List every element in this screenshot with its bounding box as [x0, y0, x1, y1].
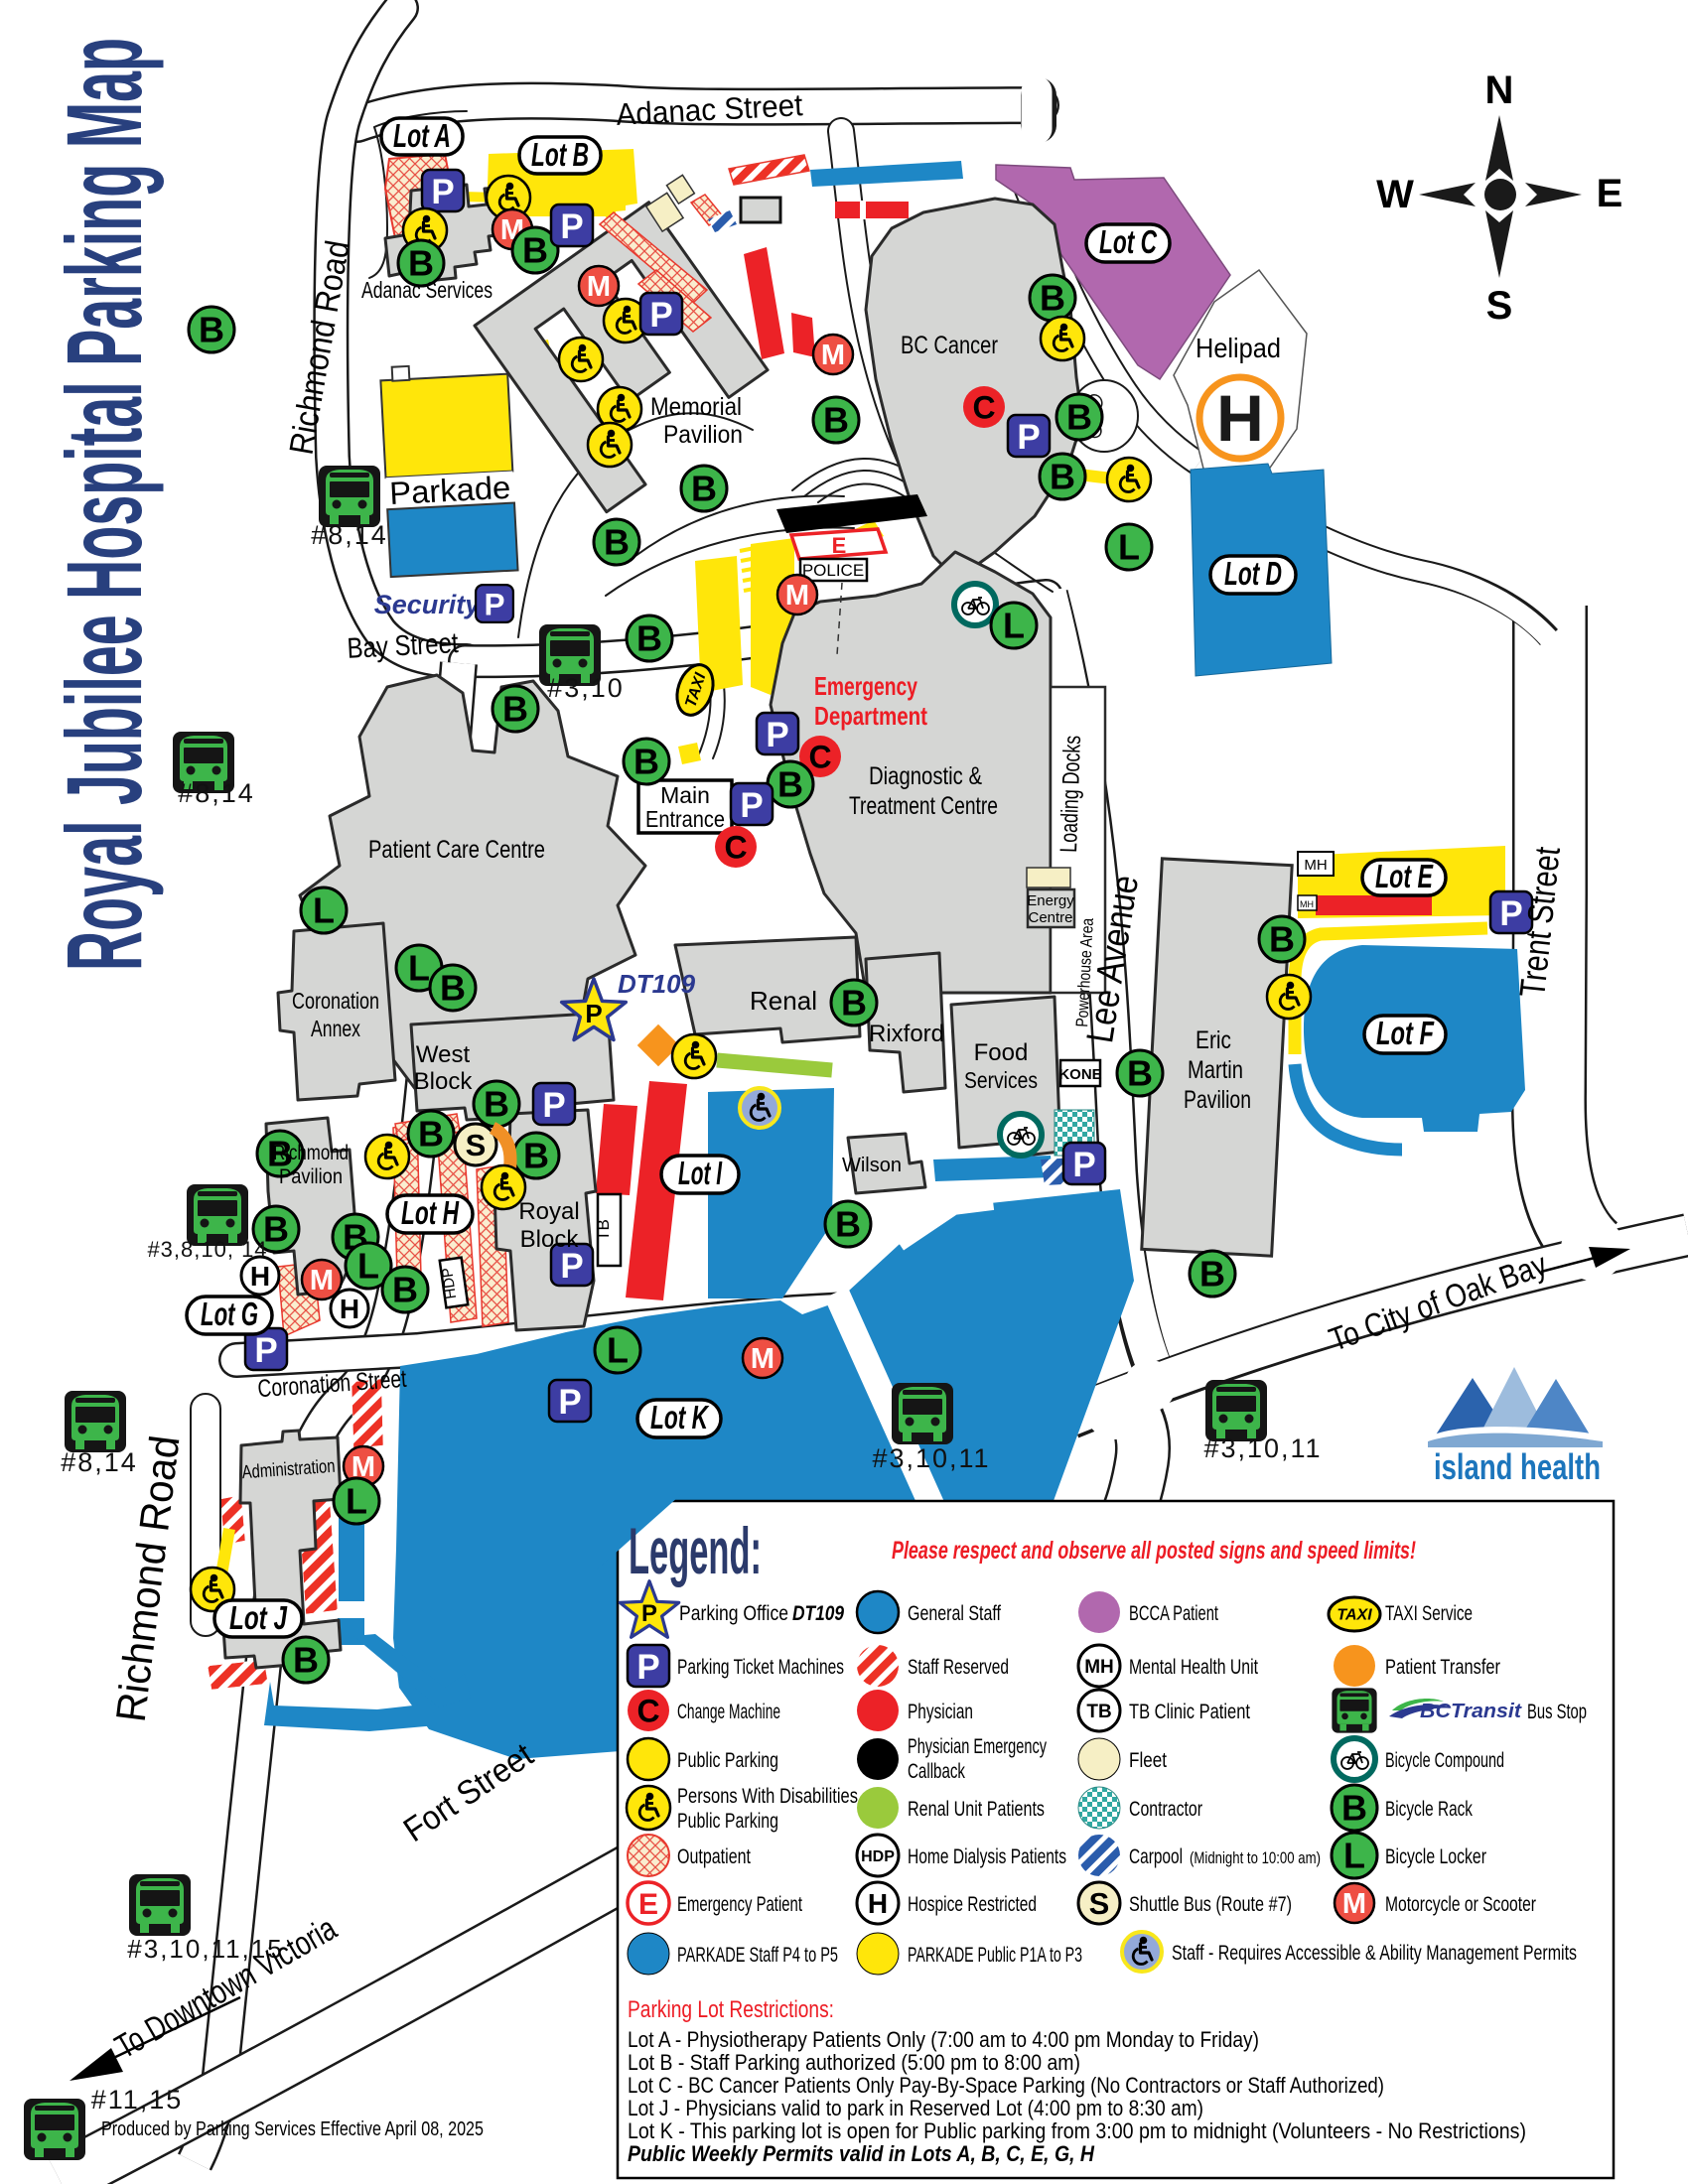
svg-text:Patient Care Centre: Patient Care Centre: [368, 836, 545, 864]
svg-text:Lot C: Lot C: [1099, 223, 1158, 260]
svg-text:KONE: KONE: [1058, 1066, 1101, 1083]
svg-text:Bay Street: Bay Street: [347, 627, 460, 665]
svg-text:Parking Ticket Machines: Parking Ticket Machines: [677, 1656, 844, 1679]
svg-text:S: S: [1486, 284, 1513, 328]
svg-text:Persons With Disabilities: Persons With Disabilities: [677, 1785, 858, 1808]
svg-text:TB: TB: [1086, 1702, 1111, 1722]
svg-text:Bicycle Rack: Bicycle Rack: [1385, 1798, 1473, 1821]
svg-text:island health: island health: [1434, 1446, 1601, 1487]
svg-text:Outpatient: Outpatient: [677, 1845, 751, 1868]
svg-text:Public Parking: Public Parking: [677, 1810, 778, 1833]
svg-text:Bicycle Locker: Bicycle Locker: [1385, 1845, 1486, 1868]
svg-text:Public Weekly Permits valid in: Public Weekly Permits valid in Lots A, B…: [628, 2141, 1095, 2166]
svg-text:BCTransit: BCTransit: [1420, 1701, 1522, 1722]
svg-text:Block: Block: [414, 1068, 474, 1095]
svg-text:Carpool: Carpool: [1129, 1845, 1183, 1868]
svg-text:Centre: Centre: [1028, 909, 1072, 926]
svg-text:Staff Reserved: Staff Reserved: [908, 1656, 1009, 1679]
svg-text:Renal: Renal: [750, 986, 817, 1016]
svg-text:Annex: Annex: [311, 1016, 360, 1041]
svg-text:#3,10,11: #3,10,11: [872, 1443, 990, 1473]
svg-text:Lot B: Lot B: [531, 136, 589, 173]
svg-text:Contractor: Contractor: [1129, 1798, 1202, 1821]
svg-text:Physician: Physician: [908, 1701, 973, 1723]
svg-text:(Midnight to 10:00 am): (Midnight to 10:00 am): [1190, 1848, 1321, 1867]
svg-text:Produced by Parking Services E: Produced by Parking Services Effective A…: [101, 2118, 484, 2140]
svg-text:Security: Security: [374, 590, 483, 619]
svg-text:Richmond: Richmond: [273, 1142, 349, 1164]
svg-text:Emergency: Emergency: [814, 671, 917, 701]
svg-text:TB Clinic Patient: TB Clinic Patient: [1129, 1701, 1250, 1723]
svg-text:Services: Services: [964, 1067, 1038, 1093]
svg-text:Lot D: Lot D: [1224, 555, 1282, 592]
svg-text:Coronation: Coronation: [292, 988, 379, 1014]
svg-text:Lot J - Physicians valid to p: Lot J - Physicians valid to park in Rese…: [628, 2096, 1203, 2120]
svg-text:MH: MH: [1084, 1657, 1114, 1678]
svg-text:Main: Main: [660, 782, 710, 808]
svg-text:Lot A - Physiotherapy Patients: Lot A - Physiotherapy Patients Only (7:0…: [628, 2027, 1259, 2052]
svg-text:#11,15: #11,15: [91, 2085, 184, 2115]
svg-text:DT109: DT109: [618, 969, 696, 999]
svg-text:E: E: [832, 533, 847, 558]
svg-text:Motorcycle or Scooter: Motorcycle or Scooter: [1385, 1893, 1536, 1916]
svg-text:Staff - Requires Accessible &: Staff - Requires Accessible & Ability Ma…: [1172, 1942, 1577, 1965]
svg-text:Department: Department: [814, 701, 927, 731]
svg-text:#8,14: #8,14: [61, 1447, 138, 1477]
svg-text:Please respect and observe all: Please respect and observe all posted si…: [892, 1537, 1416, 1565]
svg-text:Pavilion: Pavilion: [279, 1165, 343, 1188]
svg-text:Lot K: Lot K: [650, 1399, 709, 1435]
svg-text:H: H: [1216, 381, 1264, 455]
svg-text:Lot H: Lot H: [401, 1194, 460, 1231]
svg-text:Fleet: Fleet: [1129, 1749, 1167, 1772]
svg-text:Block: Block: [520, 1226, 580, 1253]
svg-text:Home Dialysis Patients: Home Dialysis Patients: [908, 1845, 1066, 1868]
svg-text:Parking Lot Restrictions:: Parking Lot Restrictions:: [628, 1996, 834, 2023]
svg-text:Lot F: Lot F: [1376, 1015, 1435, 1051]
svg-text:Food: Food: [974, 1039, 1029, 1066]
svg-text:West: West: [416, 1041, 471, 1068]
svg-text:Lot A: Lot A: [393, 117, 451, 154]
svg-text:Martin: Martin: [1188, 1056, 1243, 1084]
svg-text:Lot B - Staff Parking authoriz: Lot B - Staff Parking authorized (5:00 p…: [628, 2050, 1080, 2075]
svg-text:BC Cancer: BC Cancer: [901, 332, 998, 359]
svg-text:Bicycle Compound: Bicycle Compound: [1385, 1749, 1504, 1772]
svg-text:Parking Office: Parking Office: [679, 1602, 788, 1625]
svg-text:POLICE: POLICE: [802, 561, 864, 580]
svg-text:Pavilion: Pavilion: [663, 421, 743, 449]
svg-text:Wilson: Wilson: [842, 1155, 902, 1176]
svg-text:Energy: Energy: [1027, 892, 1074, 909]
svg-text:Memorial: Memorial: [650, 393, 742, 421]
svg-text:#8,14: #8,14: [178, 778, 255, 808]
svg-text:Lot K - This parking lot is op: Lot K - This parking lot is open for Pub…: [628, 2118, 1526, 2143]
svg-text:TAXI Service: TAXI Service: [1385, 1602, 1473, 1625]
svg-text:Eric: Eric: [1196, 1026, 1231, 1054]
svg-text:Lot C - BC Cancer Patients Onl: Lot C - BC Cancer Patients Only Pay-By-S…: [628, 2073, 1384, 2098]
svg-text:Treatment Centre: Treatment Centre: [849, 792, 998, 820]
svg-text:Lot G: Lot G: [201, 1296, 258, 1332]
svg-text:Rixford: Rixford: [869, 1021, 944, 1047]
svg-text:E: E: [1597, 172, 1623, 215]
svg-text:MH: MH: [1304, 857, 1327, 874]
svg-text:E: E: [638, 1888, 658, 1921]
svg-text:MH: MH: [1300, 899, 1314, 909]
svg-text:HDP: HDP: [861, 1848, 895, 1865]
svg-text:PARKADE Public P1A to P3: PARKADE Public P1A to P3: [908, 1944, 1082, 1967]
svg-text:Renal Unit Patients: Renal Unit Patients: [908, 1798, 1045, 1821]
svg-text:Diagnostic &: Diagnostic &: [869, 762, 982, 790]
svg-text:Royal: Royal: [518, 1198, 579, 1225]
svg-text:Lot E: Lot E: [1375, 858, 1434, 894]
svg-text:W: W: [1376, 173, 1414, 216]
svg-text:Lot I: Lot I: [678, 1155, 723, 1191]
svg-text:Patient Transfer: Patient Transfer: [1385, 1656, 1500, 1679]
svg-text:Emergency Patient: Emergency Patient: [677, 1893, 802, 1916]
svg-text:Helipad: Helipad: [1196, 333, 1281, 363]
svg-text:Legend:: Legend:: [629, 1514, 762, 1587]
svg-text:Entrance: Entrance: [645, 806, 725, 832]
svg-text:Public Parking: Public Parking: [677, 1749, 778, 1772]
svg-text:Bus Stop: Bus Stop: [1527, 1701, 1587, 1723]
svg-text:BCCA Patient: BCCA Patient: [1129, 1602, 1218, 1625]
svg-text:#3,8,10, 14: #3,8,10, 14: [147, 1237, 267, 1262]
svg-text:N: N: [1485, 68, 1514, 112]
svg-text:Pavilion: Pavilion: [1184, 1086, 1251, 1114]
svg-text:DT109: DT109: [792, 1602, 844, 1625]
svg-text:Parkade: Parkade: [388, 470, 511, 511]
svg-text:H: H: [868, 1888, 888, 1919]
svg-text:Hospice Restricted: Hospice Restricted: [908, 1893, 1037, 1916]
svg-text:Mental Health Unit: Mental Health Unit: [1129, 1656, 1258, 1679]
svg-text:PARKADE Staff P4 to P5: PARKADE Staff P4 to P5: [677, 1944, 838, 1967]
svg-text:Royal Jubilee Hospital Parking: Royal Jubilee Hospital Parking Map: [44, 38, 164, 971]
svg-text:#3,10: #3,10: [547, 673, 625, 703]
svg-text:Shuttle Bus (Route #7): Shuttle Bus (Route #7): [1129, 1893, 1292, 1916]
svg-text:#8,14: #8,14: [311, 520, 388, 550]
svg-text:Callback: Callback: [908, 1760, 965, 1783]
svg-text:TB: TB: [594, 1219, 613, 1241]
svg-text:Adanac Services: Adanac Services: [361, 277, 492, 303]
svg-text:Change Machine: Change Machine: [677, 1701, 780, 1723]
svg-text:Lot J: Lot J: [229, 1599, 287, 1636]
svg-text:General Staff: General Staff: [908, 1602, 1001, 1625]
svg-text:Loading Docks: Loading Docks: [1055, 735, 1086, 853]
svg-text:#3,10,11: #3,10,11: [1203, 1433, 1322, 1463]
svg-text:Physician Emergency: Physician Emergency: [908, 1735, 1047, 1758]
